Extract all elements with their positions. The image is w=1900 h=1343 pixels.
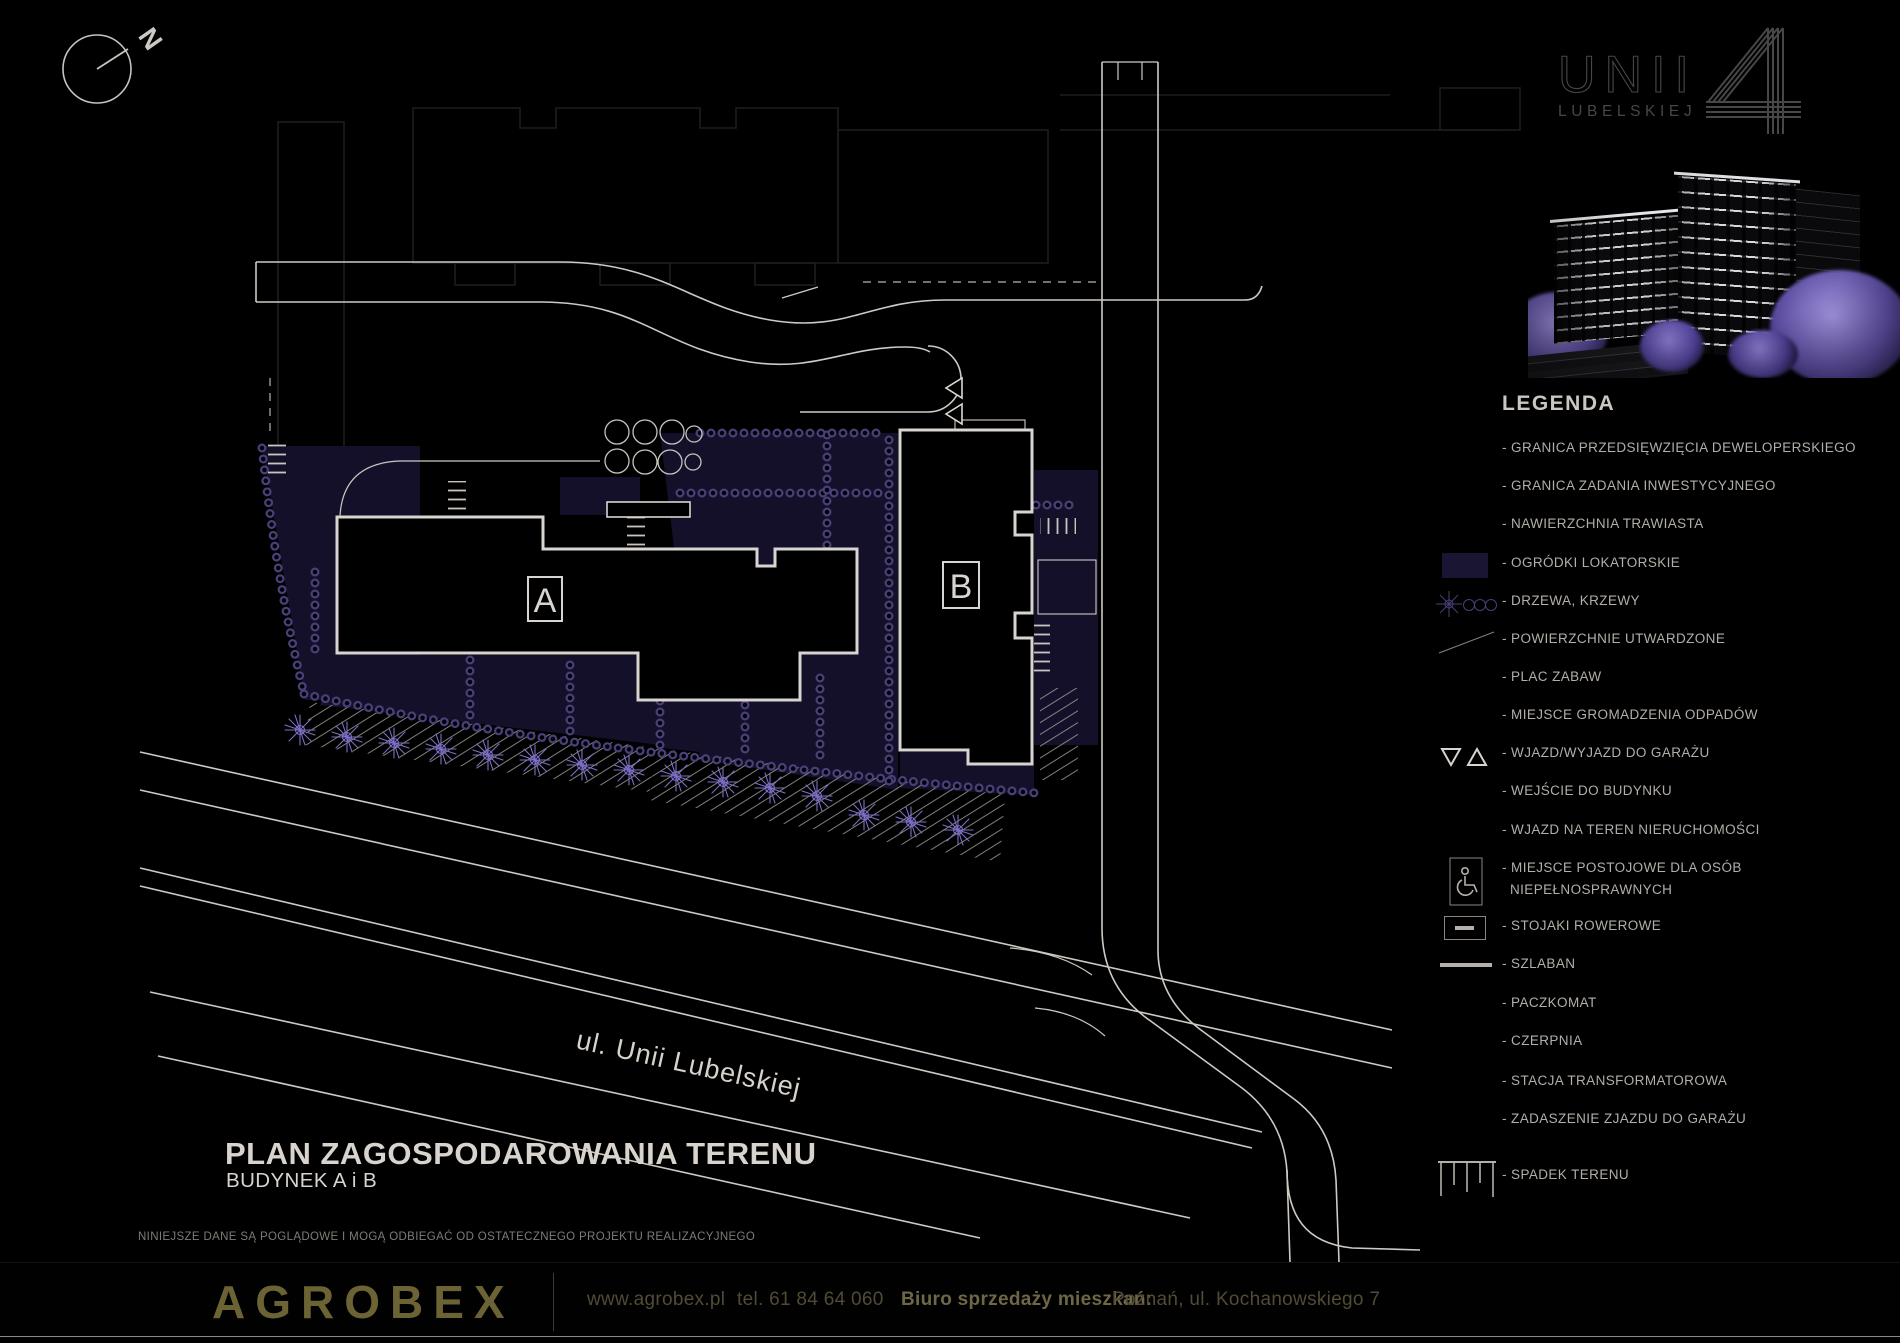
- legend-item-granica-zadania: - GRANICA ZADANIA INWESTYCYJNEGO: [1436, 478, 1898, 502]
- legend-item-paczkomat: - PACZKOMAT: [1436, 995, 1898, 1019]
- disclaimer-text: NINIEJSZE DANE SĄ POGLĄDOWE I MOGĄ ODBIE…: [138, 1231, 755, 1243]
- building-render-image: [1528, 152, 1900, 378]
- garage-triangles-icon: [1436, 739, 1498, 773]
- legend-heading: LEGENDA: [1502, 392, 1615, 416]
- legend-item-spadek-terenu: - SPADEK TERENU: [1436, 1167, 1898, 1191]
- legend-item-szlaban: - SZLABAN: [1436, 956, 1898, 980]
- render-tree: [1770, 270, 1900, 378]
- legend-item-wejscie-budynek: - WEJŚCIE DO BUDYNKU: [1436, 783, 1898, 807]
- compass-north-label: N: [132, 22, 168, 55]
- trees-icon: [1436, 587, 1498, 621]
- legend-item-stacja-transformatorowa: - STACJA TRANSFORMATOROWA: [1436, 1073, 1898, 1097]
- legend-item-granica-przedsiewziecia: - GRANICA PRZEDSIĘWZIĘCIA DEWELOPERSKIEG…: [1436, 440, 1898, 464]
- boundary-dashed: [270, 282, 1098, 432]
- legend-item-plac-zabaw: - PLAC ZABAW: [1436, 669, 1898, 693]
- barrier-icon: [1436, 950, 1498, 984]
- legend-item-miejsce-niepelnosprawni: - MIEJSCE POSTOJOWE DLA OSÓB NIEPEŁNOSPR…: [1436, 860, 1898, 906]
- paved-surface-icon: [1436, 625, 1498, 659]
- compass-icon: N: [63, 22, 168, 103]
- render-building-left: [1554, 214, 1682, 343]
- render-tree: [1528, 292, 1608, 372]
- legend-item-wjazd-garaz: - WJAZD/WYJAZD DO GARAŻU: [1436, 745, 1898, 769]
- footer-bar: AGROBEX www.agrobex.pl tel. 61 84 64 060…: [0, 1262, 1900, 1343]
- footer-phone: tel. 61 84 64 060: [737, 1289, 884, 1311]
- legend-item-stojaki-rowerowe: - STOJAKI ROWEROWE: [1436, 918, 1898, 942]
- disabled-parking-icon: [1436, 856, 1498, 908]
- bike-rack-icon: [1436, 912, 1498, 946]
- legend-item-drzewa-krzewy: - DRZEWA, KRZEWY: [1436, 593, 1898, 617]
- footer-divider: [553, 1273, 554, 1331]
- logo-numeral-4: [1706, 28, 1801, 134]
- render-building-right: [1678, 176, 1796, 360]
- legend-item-ogrodki-lokatorskie: - OGRÓDKI LOKATORSKIE: [1436, 555, 1898, 579]
- footer-office-address: Poznań, ul. Kochanowskiego 7: [1112, 1289, 1380, 1311]
- site-plan-poster: A B N ul. Unii Lubelskiej UNII LUBELSKIE…: [0, 0, 1900, 1343]
- legend-item-wjazd-teren: - WJAZD NA TEREN NIERUCHOMOŚCI: [1436, 822, 1898, 846]
- page-title: PLAN ZAGOSPODAROWANIA TERENU: [225, 1136, 817, 1172]
- footer-website: www.agrobex.pl: [587, 1289, 725, 1311]
- legend-item-czerpnia: - CZERPNIA: [1436, 1033, 1898, 1057]
- render-roofline: [1550, 208, 1686, 223]
- logo-line1: UNII: [1558, 46, 1698, 104]
- garage-entry-triangles: [946, 378, 962, 424]
- render-road: [1528, 340, 1688, 378]
- logo-line2: LUBELSKIEJ: [1558, 103, 1696, 120]
- slope-comb-icon: [1436, 1157, 1498, 1201]
- legend-item-nawierzchnia-trawiasta: - NAWIERZCHNIA TRAWIASTA: [1436, 516, 1898, 540]
- building-b: B: [900, 430, 1032, 764]
- garden-swatch-icon: [1436, 549, 1498, 583]
- legend-item-miejsce-odpadow: - MIEJSCE GROMADZENIA ODPADÓW: [1436, 707, 1898, 731]
- logo-art: UNII LUBELSKIEJ: [1546, 22, 1900, 147]
- render-building-side: [1796, 189, 1860, 364]
- render-tree: [1640, 320, 1704, 372]
- render-roofline: [1674, 172, 1800, 184]
- building-b-label: B: [950, 568, 973, 606]
- footer-rule-line: [0, 1336, 1900, 1337]
- page-subtitle: BUDYNEK A i B: [226, 1169, 377, 1193]
- building-a-label: A: [534, 582, 557, 620]
- existing-buildings-outlines: [278, 88, 1520, 468]
- legend-item-powierzchnie-utwardzone: - POWIERZCHNIE UTWARDZONE: [1436, 631, 1898, 655]
- render-tree: [1728, 330, 1798, 378]
- legend-item-zadaszenie-zjazdu: - ZADASZENIE ZJAZDU DO GARAŻU: [1436, 1111, 1898, 1135]
- logo-unii-lubelskiej-4: UNII LUBELSKIEJ: [1546, 22, 1900, 147]
- agrobex-logo: AGROBEX: [212, 1275, 515, 1329]
